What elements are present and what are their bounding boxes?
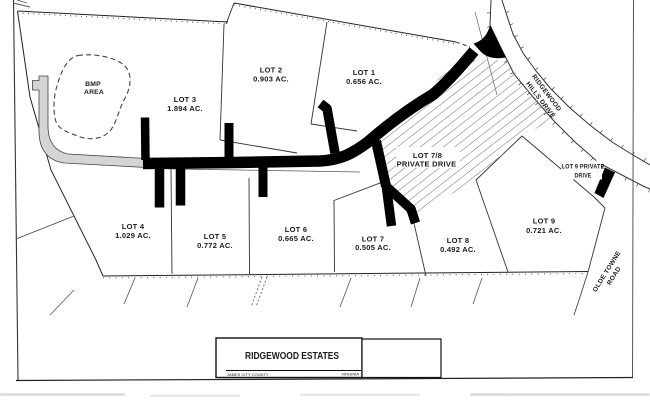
svg-text:0.772 AC.: 0.772 AC. bbox=[197, 241, 233, 250]
svg-text:JAMES CITY COUNTY: JAMES CITY COUNTY bbox=[227, 372, 269, 377]
svg-text:RIDGEWOOD ESTATES: RIDGEWOOD ESTATES bbox=[245, 351, 339, 362]
svg-text:LOT 9: LOT 9 bbox=[533, 217, 556, 226]
svg-text:0.656 AC.: 0.656 AC. bbox=[346, 77, 382, 86]
svg-text:BMP: BMP bbox=[85, 81, 101, 88]
svg-text:AREA: AREA bbox=[84, 89, 104, 96]
svg-text:0.903 AC.: 0.903 AC. bbox=[253, 75, 289, 84]
svg-text:PRIVATE DRIVE: PRIVATE DRIVE bbox=[397, 160, 457, 169]
svg-text:1.894 AC.: 1.894 AC. bbox=[167, 104, 203, 113]
svg-text:0.721 AC.: 0.721 AC. bbox=[526, 226, 562, 235]
svg-text:LOT 9 PRIVATE: LOT 9 PRIVATE bbox=[562, 164, 605, 171]
svg-text:LOT 1: LOT 1 bbox=[353, 68, 376, 77]
svg-text:LOT 6: LOT 6 bbox=[285, 225, 308, 234]
svg-text:LOT 3: LOT 3 bbox=[174, 95, 197, 104]
svg-text:0.505 AC.: 0.505 AC. bbox=[355, 243, 391, 252]
svg-text:DRIVE: DRIVE bbox=[575, 173, 592, 180]
svg-text:LOT 8: LOT 8 bbox=[447, 236, 470, 245]
svg-text:LOT 2: LOT 2 bbox=[260, 66, 283, 75]
svg-text:VIRGINIA: VIRGINIA bbox=[341, 372, 359, 377]
svg-text:0.665 AC.: 0.665 AC. bbox=[278, 234, 314, 243]
svg-text:1.029 AC.: 1.029 AC. bbox=[115, 231, 151, 240]
svg-text:LOT 4: LOT 4 bbox=[122, 222, 145, 231]
svg-text:0.492 AC.: 0.492 AC. bbox=[440, 245, 476, 254]
svg-text:LOT 5: LOT 5 bbox=[204, 232, 227, 241]
